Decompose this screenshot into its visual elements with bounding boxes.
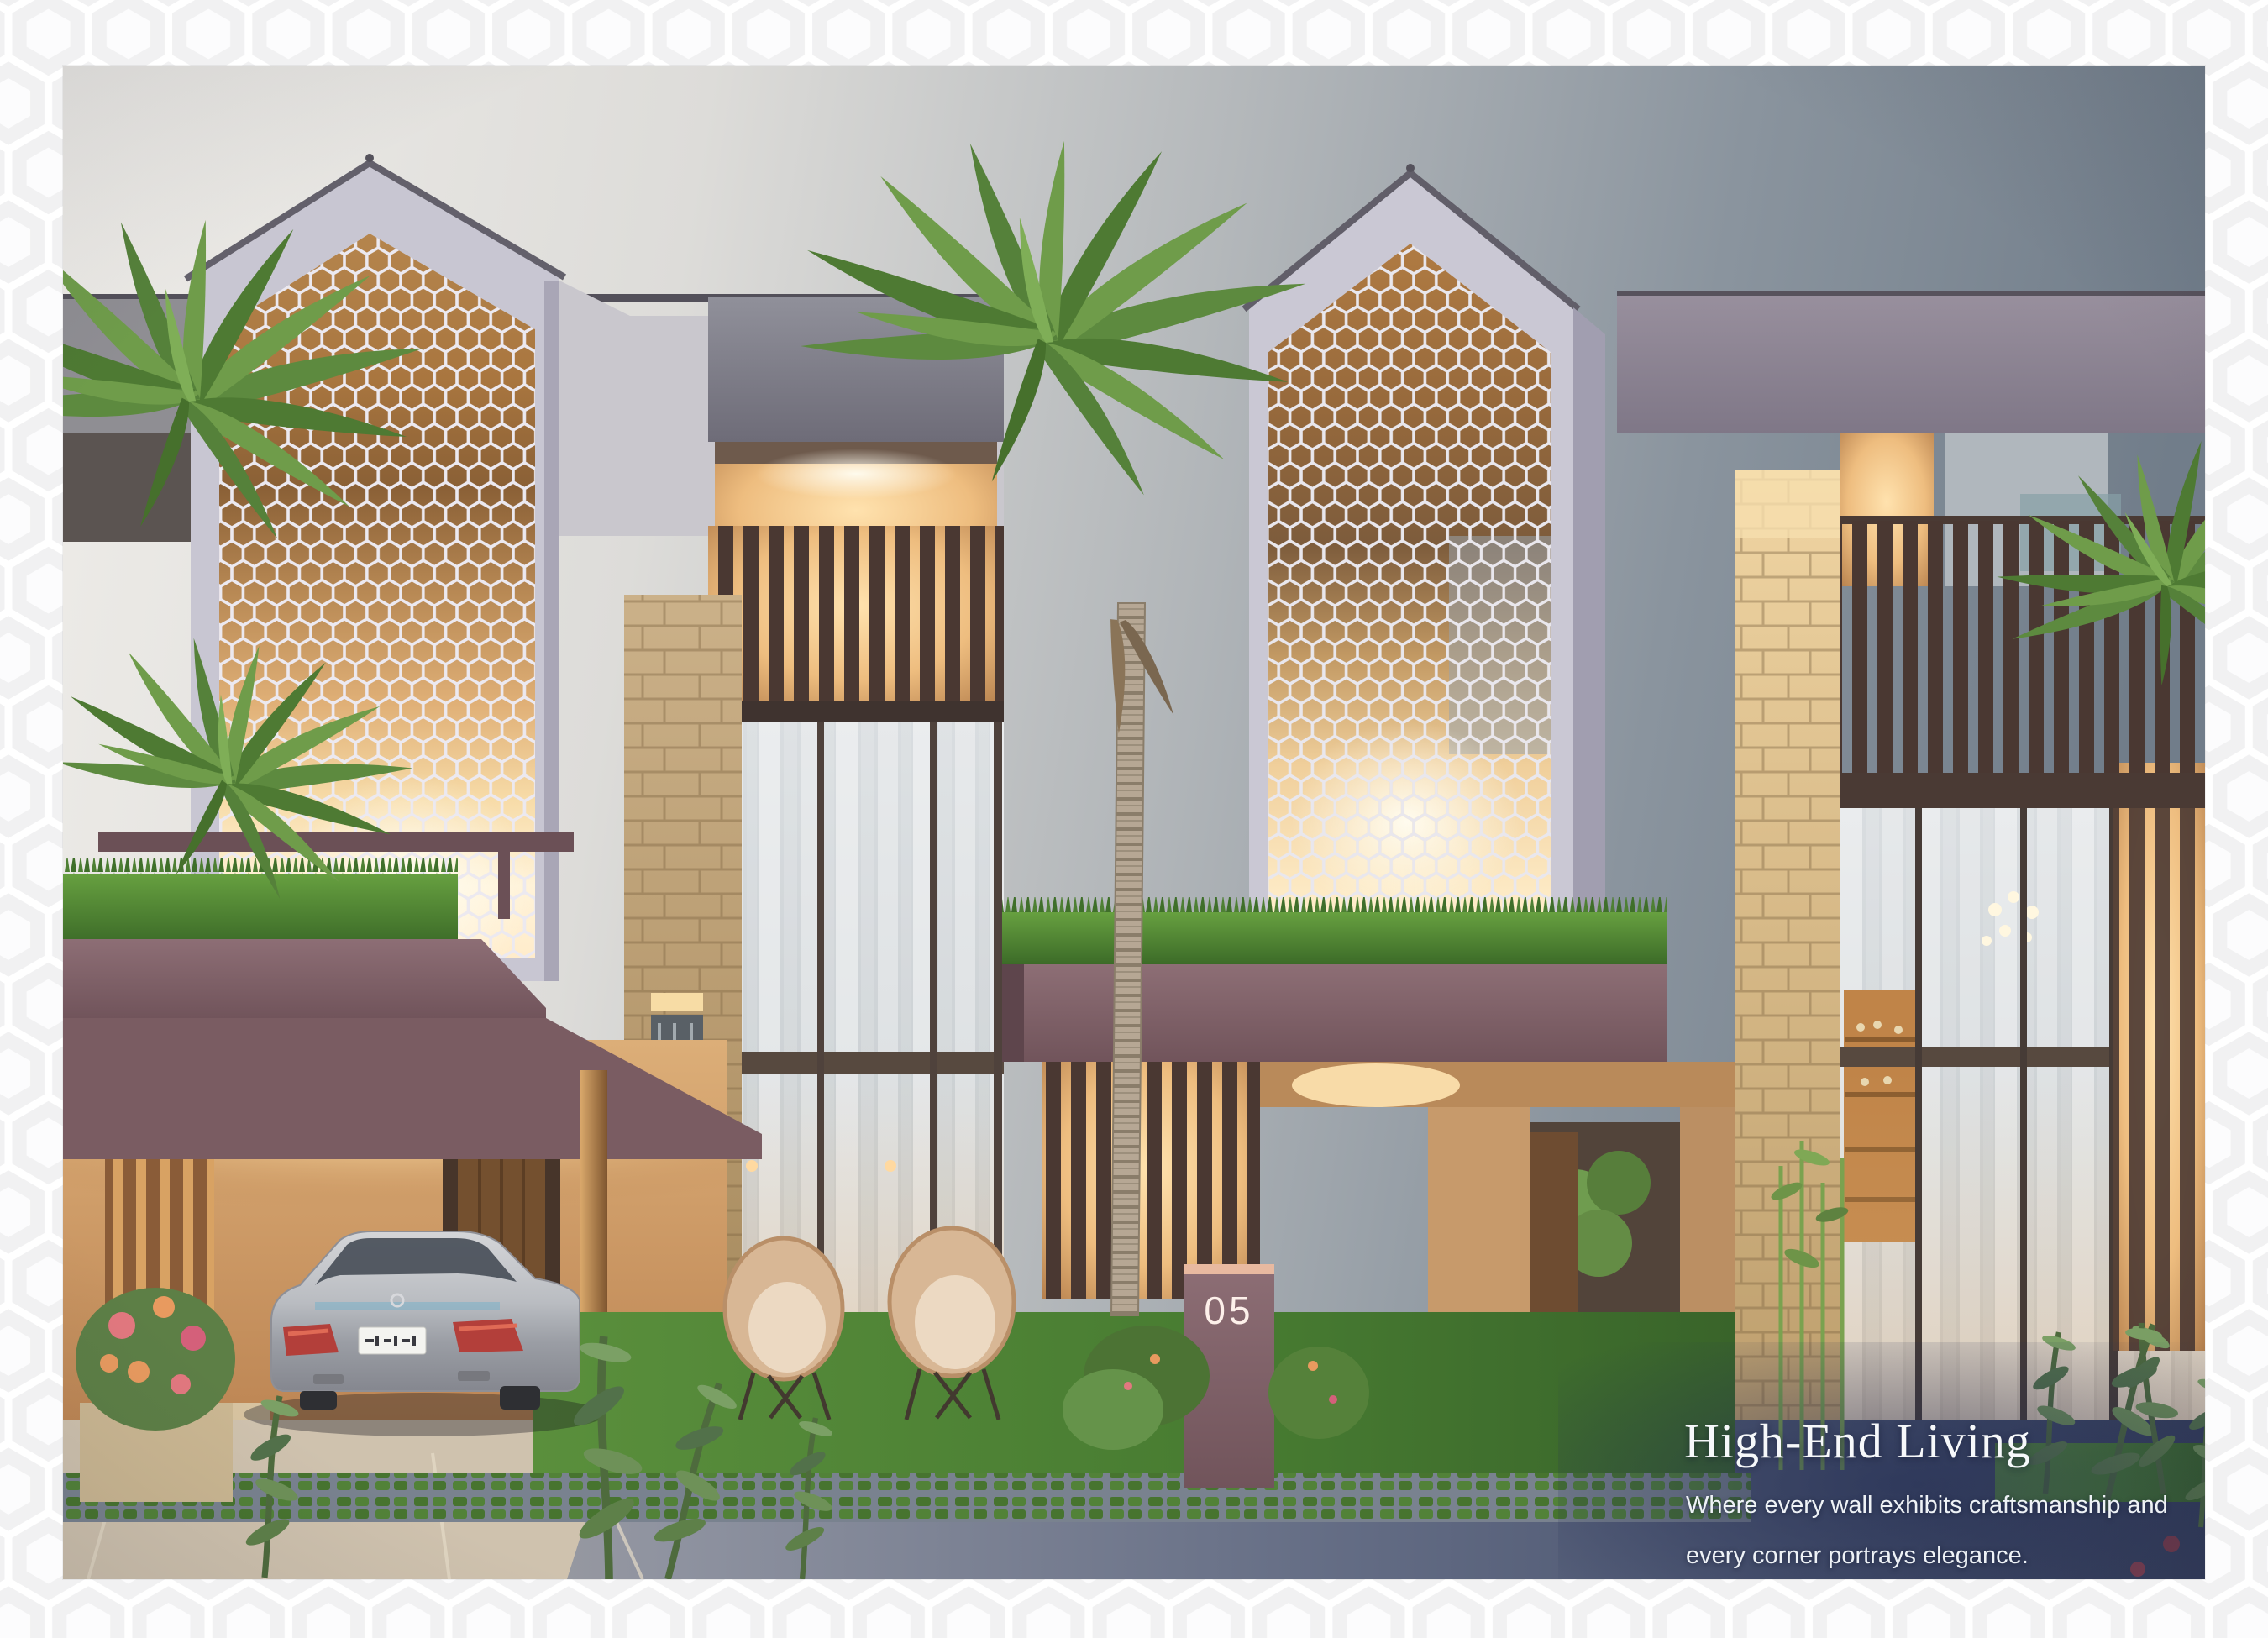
vignette: [63, 66, 2205, 1579]
brochure-page: 05: [0, 0, 2268, 1638]
caption-subtitle-line1: Where every wall exhibits craftsmanship …: [1686, 1492, 2168, 1520]
caption-title: High-End Living: [1684, 1413, 2031, 1469]
architectural-rendering-photo: 05: [63, 66, 2205, 1579]
caption-subtitle-line2: every corner portrays elegance.: [1686, 1542, 2029, 1570]
